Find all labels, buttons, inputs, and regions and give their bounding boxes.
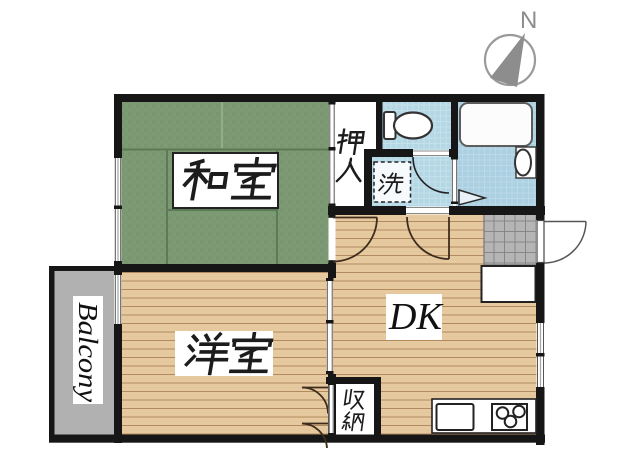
- svg-text:DK: DK: [388, 296, 443, 338]
- svg-text:N: N: [520, 7, 537, 34]
- svg-text:Balcony: Balcony: [73, 302, 103, 402]
